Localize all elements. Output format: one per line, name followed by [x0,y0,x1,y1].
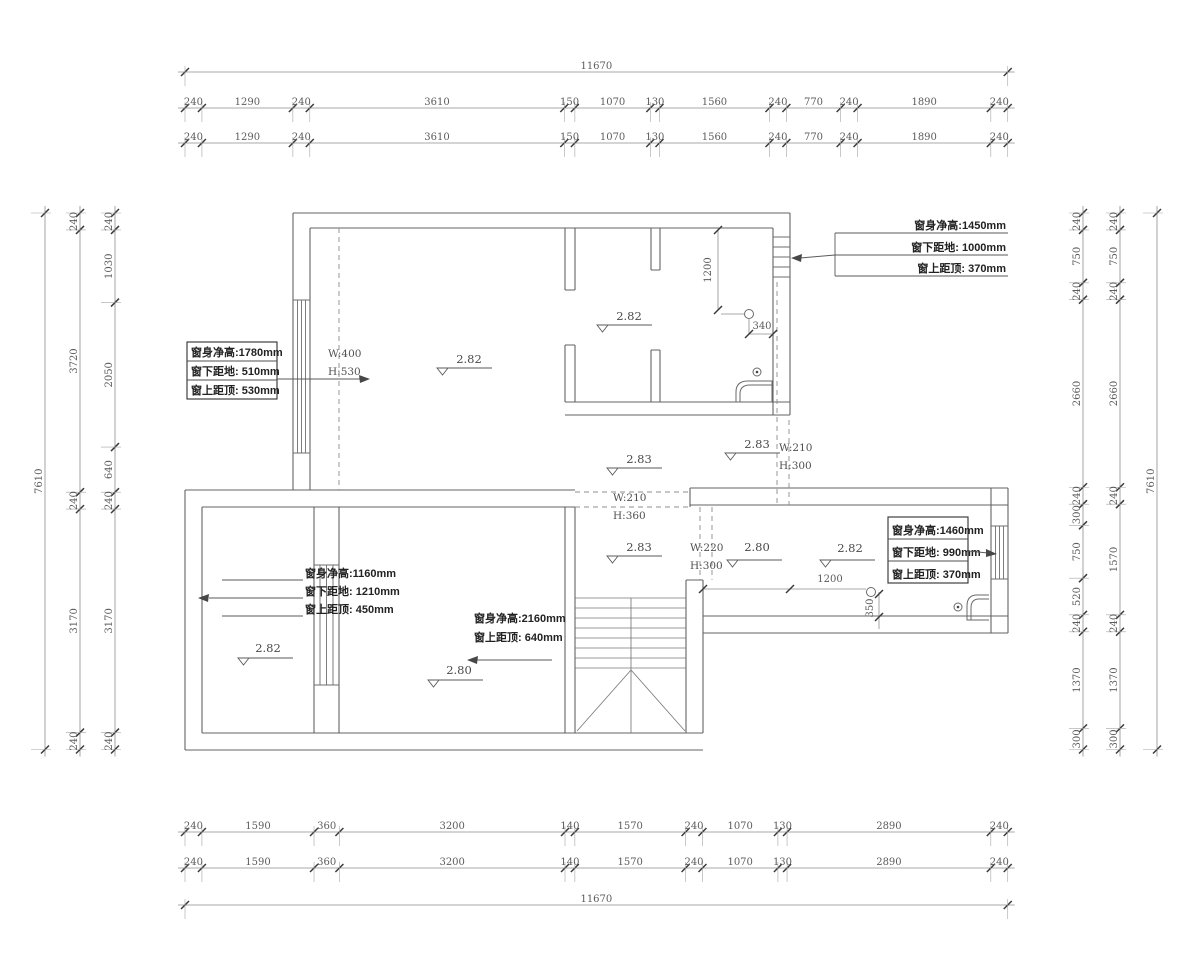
level-marker: 2.80 [727,540,782,567]
level-marker: 2.82 [597,309,652,332]
dim-label: 240 [1109,614,1120,633]
dim-chain-right_inner: 24075024026602403007505202401370300 [1069,206,1089,757]
dim-label: 2890 [876,821,901,832]
dim-label: 240 [684,857,703,868]
window-note-stair: 窗身净高:2160mm 窗上距顶: 640mm [467,611,566,664]
point-marker-upper [745,310,754,319]
dim-chain-right_overall: 7610 [1143,206,1163,757]
dim-label: 240 [1109,212,1120,231]
level-marker: 2.82 [820,541,875,567]
dim-label: 11670 [580,894,612,905]
dim-label: 7610 [1146,469,1157,494]
level-value: 2.83 [744,437,770,451]
dim-label: 240 [840,97,859,108]
dim-label: 240 [1072,614,1083,633]
dim-label: 240 [292,97,311,108]
note-line: 窗下距地: 1210mm [305,584,400,598]
dim-label: 11670 [580,61,612,72]
leader-arrow [791,254,802,262]
dim-340: 340 [745,321,777,338]
dim-chain-top_row2: 2401290240361015010701301560240770240189… [178,132,1015,157]
dim-label: 1890 [911,132,936,143]
level-marker: 2.83 [607,452,662,475]
dim-label: 130 [773,857,792,868]
drain-icon-lower-right [954,603,962,611]
dim-label: 240 [1109,486,1120,505]
dim-label: 1070 [727,821,752,832]
dim-label: 520 [1072,587,1083,606]
level-marker: 2.80 [428,663,483,687]
window-lower-left-interior [314,565,339,685]
dim-label: 1070 [600,97,625,108]
dim-chain-right_mid: 240750240266024015702401370300 [1106,206,1126,757]
dim-label: 750 [1072,247,1083,266]
dim-chain-bottom_overall: 11670 [178,894,1015,919]
dim-label: 3200 [439,821,464,832]
dim-label-1200h: 1200 [817,574,842,585]
dim-label: 2050 [104,362,115,387]
dim-label: 3170 [104,608,115,633]
note-line: 窗上距顶: 370mm [917,261,1006,275]
dim-chain-bottom_row1: 24015903603200140157024010701302890240 [178,821,1015,846]
dim-label: 1560 [702,132,727,143]
dim-label: 300 [1072,505,1083,524]
level-value: 2.83 [626,452,652,466]
note-line: 窗身净高:1450mm [914,218,1006,232]
dim-chain-top_row1: 2401290240361015010701301560240770240189… [178,97,1015,122]
beam-note-h: H:300 [690,560,723,572]
dim-label: 7610 [34,469,45,494]
dim-label: 240 [990,821,1009,832]
stairs [575,598,686,733]
level-marker: 2.83 [607,540,662,563]
dim-label: 240 [684,821,703,832]
dim-label: 240 [69,212,80,231]
dim-label: 2660 [1109,381,1120,406]
drain-icon-upper-right [753,368,761,376]
dim-label: 360 [317,857,336,868]
dim-label: 240 [184,132,203,143]
dim-label: 1030 [104,254,115,279]
dim-label: 1570 [617,857,642,868]
window-note-right-lower: 窗身净高:1460mm 窗下距地: 990mm 窗上距顶: 370mm [888,517,997,583]
beam-note-w: W:400 [328,348,361,360]
level-value: 2.83 [626,540,652,554]
dim-label: 240 [1072,486,1083,505]
floorplan-canvas: 1200 340 1200 350 2.82 2.82 2.83 2.83 2.… [0,0,1200,956]
dim-label: 130 [773,821,792,832]
dim-label: 1290 [235,97,260,108]
level-marker: 2.82 [437,352,492,375]
dim-label: 1560 [702,97,727,108]
dim-label: 240 [1109,282,1120,301]
window-top-right [773,237,790,277]
inline-dimensions: 1200 340 1200 350 [699,226,883,629]
dim-label: 2660 [1072,381,1083,406]
note-line: 窗身净高:2160mm [474,611,566,625]
dim-label: 3170 [69,608,80,633]
level-value: 2.82 [837,541,863,555]
dim-label: 750 [1109,247,1120,266]
dim-label: 240 [768,97,787,108]
dim-label: 1570 [617,821,642,832]
note-line: 窗上距顶: 450mm [305,602,394,616]
dim-label: 2890 [876,857,901,868]
level-marker: 2.82 [238,641,293,665]
note-line: 窗身净高:1460mm [892,523,984,537]
dim-label: 240 [69,731,80,750]
dim-label: 150 [560,97,579,108]
window-note-lower-left: 窗身净高:1160mm 窗下距地: 1210mm 窗上距顶: 450mm [198,566,400,616]
dim-chain-left_inner: 240103020506402403170240 [101,206,121,757]
dim-label: 1570 [1109,547,1120,572]
beam-notes: W:400 H:530 W:210 H:300 W:210 H:360 W:22… [328,348,812,572]
dim-label-340: 340 [752,321,771,332]
dim-label: 1590 [245,821,270,832]
dim-label: 1590 [245,857,270,868]
beam-note-w: W:210 [613,492,646,504]
beam-note-w: W:210 [779,442,812,454]
window-left-upper [293,300,310,453]
dim-label: 240 [292,132,311,143]
dim-label: 240 [104,212,115,231]
note-line: 窗下距地: 1000mm [911,240,1006,254]
dim-label: 240 [104,731,115,750]
note-line: 窗上距顶: 370mm [892,567,981,581]
dim-label: 240 [69,491,80,510]
dim-label: 770 [804,132,823,143]
leader-arrow [198,594,209,602]
dim-label: 1290 [235,132,260,143]
note-line: 窗上距顶: 530mm [191,383,280,397]
dim-1200-horizontal: 1200 [699,574,866,593]
note-line: 窗上距顶: 640mm [474,630,563,644]
dim-label: 240 [184,821,203,832]
dim-label: 1370 [1072,667,1083,692]
dim-label: 240 [990,857,1009,868]
dim-label: 130 [645,97,664,108]
dim-label: 300 [1072,729,1083,748]
dim-label: 240 [104,491,115,510]
dim-label: 640 [104,460,115,479]
beam-note-h: H:300 [779,460,812,472]
window-note-top-right: 窗身净高:1450mm 窗下距地: 1000mm 窗上距顶: 370mm [791,218,1008,276]
dim-label: 140 [560,857,579,868]
note-line: 窗下距地: 510mm [191,364,280,378]
dim-1200-vertical: 1200 [703,226,749,334]
dim-label: 240 [184,857,203,868]
dim-label: 750 [1072,542,1083,561]
beam-note-h: H:530 [328,366,361,378]
dim-label: 150 [560,132,579,143]
dim-label: 240 [768,132,787,143]
dim-label: 140 [560,821,579,832]
dim-label: 1070 [727,857,752,868]
note-line: 窗下距地: 990mm [892,545,981,559]
dim-label: 240 [184,97,203,108]
dim-chain-left_overall: 7610 [31,206,51,757]
dim-label: 240 [1072,212,1083,231]
level-value: 2.82 [255,641,281,655]
dim-label: 3610 [424,132,449,143]
dim-label: 240 [840,132,859,143]
dim-chain-bottom_row2: 24015903603200140157024010701302890240 [178,857,1015,882]
dim-label: 240 [1072,282,1083,301]
note-line: 窗身净高:1160mm [305,566,396,580]
dim-label: 1370 [1109,667,1120,692]
floorplan-page: 1200 340 1200 350 2.82 2.82 2.83 2.83 2.… [0,0,1200,956]
beam-note-w: W:220 [690,542,723,554]
dim-label: 3200 [439,857,464,868]
level-value: 2.82 [616,309,642,323]
dim-label: 3720 [69,348,80,373]
note-line: 窗身净高:1780mm [191,345,283,359]
dim-label: 300 [1109,729,1120,748]
dim-label-350: 350 [865,598,876,617]
level-value: 2.80 [744,540,770,554]
wall-lines [185,213,1008,750]
dim-label: 1070 [600,132,625,143]
dim-label: 360 [317,821,336,832]
level-value: 2.82 [456,352,482,366]
dashed-beam-lines [339,228,789,580]
dim-label: 240 [990,97,1009,108]
dim-label: 240 [990,132,1009,143]
dim-label: 130 [645,132,664,143]
dim-label: 1890 [911,97,936,108]
dim-label: 3610 [424,97,449,108]
beam-note-h: H:360 [613,510,646,522]
point-marker-lower [867,588,876,597]
shower-tray-upper-right [736,381,772,402]
dim-label-1200v: 1200 [703,257,714,282]
dim-chain-left_mid: 24037202403170240 [66,206,86,757]
level-marker: 2.83 [725,437,780,460]
dim-chain-top_overall: 11670 [178,61,1015,86]
level-value: 2.80 [446,663,472,677]
dim-label: 770 [804,97,823,108]
